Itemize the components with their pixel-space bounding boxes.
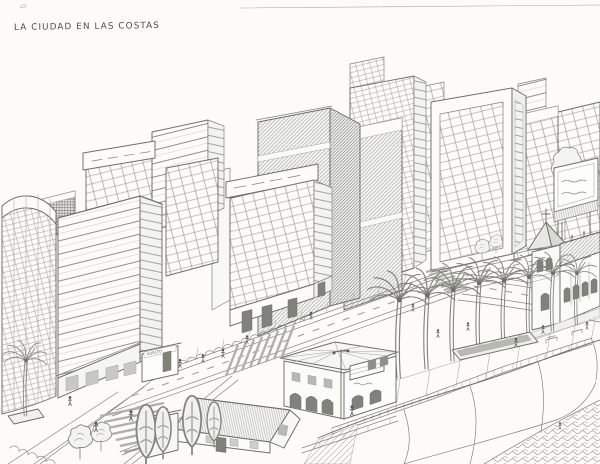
artwork-title: LA CIUDAD EN LAS COSTAS <box>14 21 160 33</box>
city-sketch-canvas: LA CIUDAD EN LAS COSTAS <box>0 0 600 464</box>
pencil-sketch-page: LA CIUDAD EN LAS COSTAS <box>0 0 600 464</box>
cluster-tower-right <box>166 158 218 276</box>
church-door <box>541 293 549 311</box>
curved-glass-building <box>2 194 56 414</box>
